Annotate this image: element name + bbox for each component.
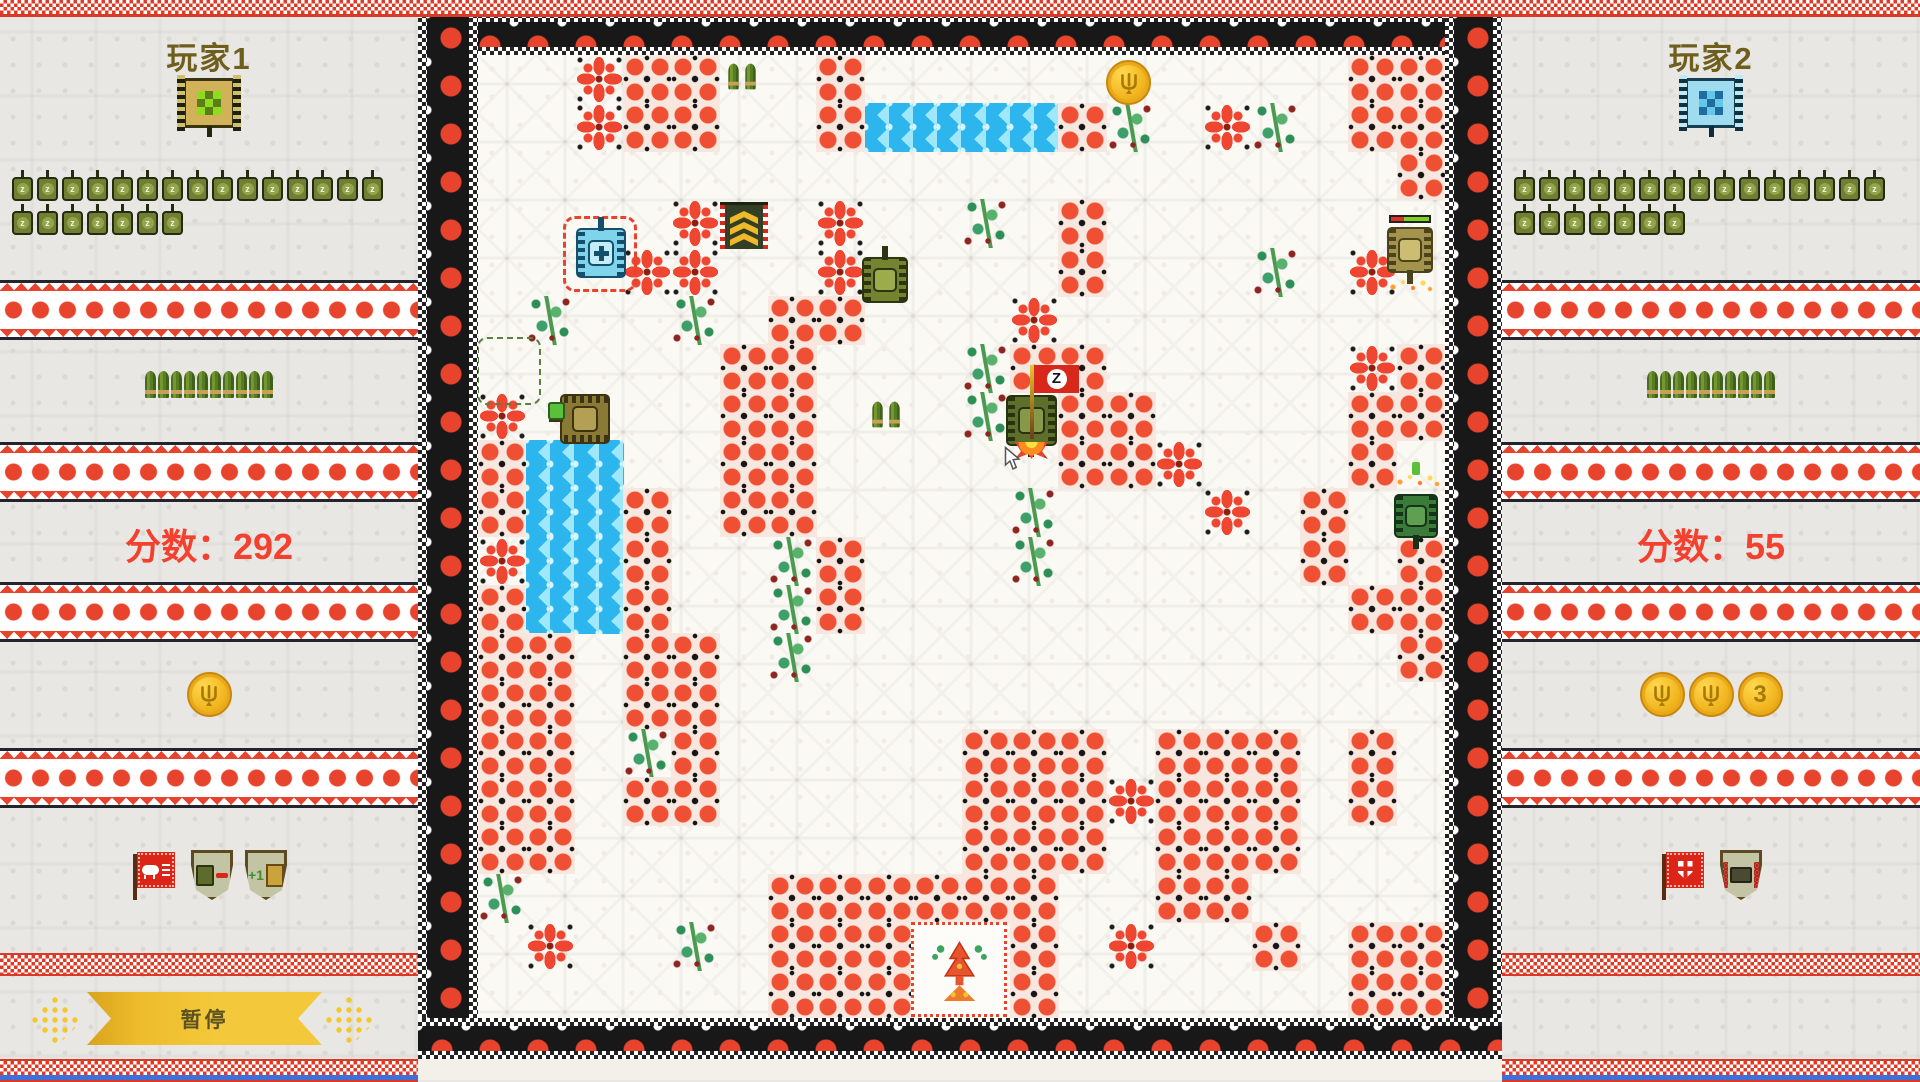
tile-water [575,488,624,537]
tile-water [526,440,575,489]
tile-flower-brick [1010,777,1059,826]
tile-star-brick [526,922,575,971]
tank-icon [196,865,214,886]
ammo-bullet-icon [1764,371,1775,398]
game-field: Z [418,0,1502,1080]
tile-flower-brick [1252,825,1301,874]
tile-star-brick [816,248,865,297]
ammo-bullet-icon [249,371,260,398]
ammo-bullet-icon [1660,371,1671,398]
coin-icon [187,672,232,717]
tile-flower-brick [478,729,527,778]
tile-flower-brick [1397,585,1445,634]
tile-bush [962,392,1011,441]
life-tank-icon: z [1539,177,1560,201]
coin-icon [1689,672,1734,717]
snowflake-icon [599,251,604,256]
life-tank-icon: z [112,211,133,235]
tile-water [575,585,624,634]
life-tank-icon: z [1664,211,1685,235]
tile-flower-brick [720,440,769,489]
player2-score-value: 55 [1745,526,1785,567]
ammo-bullet-icon [1699,371,1710,398]
ornament-stripe [1502,582,1920,642]
tile-flower-brick [671,681,720,730]
player2-tank-body [576,228,626,278]
ornament-stripe [0,442,418,502]
tile-star-brick [1203,488,1252,537]
snowflake-motif [324,995,376,1047]
ornament-stripe [1502,442,1920,502]
life-tank-icon: z [1539,211,1560,235]
life-tank-icon: z [1614,177,1635,201]
ammo-bullet-icon [1725,371,1736,398]
tile-flower-brick [623,585,672,634]
tile-water [526,585,575,634]
tile-flower-brick [1348,585,1397,634]
player2-tank [576,228,626,278]
field-border-bottom [418,1018,1502,1059]
pause-button[interactable]: 暂停 [87,992,322,1045]
lives-row: zzzzzzzzzzzzzzz [10,170,410,201]
tile-bush [768,633,817,682]
tile-flower-brick [1058,103,1107,152]
field-border-right [1445,14,1502,1059]
life-tank-icon: z [12,177,33,201]
life-tank-icon: z [1514,177,1535,201]
tile-flower-brick [816,585,865,634]
tile-water [865,103,914,152]
shield-cross-emblem-icon [1678,861,1693,879]
life-tank-icon: z [112,177,133,201]
tile-bush [1010,537,1059,586]
life-tank-icon: z [1564,177,1585,201]
ammo-bullet-icon [1673,371,1684,398]
life-tank-icon: z [1589,177,1610,201]
coin-pickup [1106,60,1151,105]
tile-flower-brick [865,874,914,923]
tile-star-brick [671,248,720,297]
tile-flower-brick [1058,825,1107,874]
life-tank-icon: z [87,211,108,235]
mouse-cursor [1004,446,1022,471]
life-tank-icon: z [1564,211,1585,235]
rider-figure [548,402,565,420]
thin-ornament-band [0,953,418,976]
ammo-bullet-icon [197,371,208,398]
ammo-pickup [727,63,757,90]
tile-flower-brick [526,633,575,682]
ammo-pickup [871,401,901,428]
tile-flower-brick [623,488,672,537]
tile-bush [962,199,1011,248]
enemy-tank-left [560,394,610,444]
tile-flower-brick [1010,825,1059,874]
ornament-stripe [0,748,418,808]
green-tank [1394,494,1438,538]
health-bar [1389,215,1431,223]
tile-flower-brick [623,777,672,826]
tile-flower-brick [1300,537,1349,586]
life-tank-icon: z [1639,177,1660,201]
tile-flower-brick [1010,922,1059,971]
tile-flower-brick [478,777,527,826]
tile-flower-brick [1348,103,1397,152]
ammo-bullet-icon [210,371,221,398]
tile-star-brick [1010,296,1059,345]
tile-water [526,537,575,586]
bonus-figure-icon [1412,462,1420,475]
tile-bush [671,296,720,345]
ornament-stripe [0,582,418,642]
tile-flower-brick [526,777,575,826]
tile-flower-brick [816,970,865,1018]
lives-row: zzzzzzzzzzzzzzz [1512,170,1912,201]
tile-bush [962,344,1011,393]
player2-tank-emblem [1685,78,1737,128]
ammo-bullet-icon [889,402,899,428]
tile-flower-brick [816,55,865,104]
ammo-bullet-icon [745,64,755,90]
z-flag: Z [1034,365,1079,393]
powerup-flag-icon [131,850,179,902]
tile-star-brick [1107,922,1156,971]
tile-flower-brick [1058,199,1107,248]
tile-flower-brick [1155,825,1204,874]
player1-score: 分数：292 [0,518,418,570]
life-tank-icon: z [362,177,383,201]
life-tank-icon: z [12,211,33,235]
sergeant-stripes-pickup [720,202,768,249]
tile-bush [1252,248,1301,297]
life-tank-icon: z [37,211,58,235]
tile-flower-brick [1348,440,1397,489]
tile-flower-brick [478,440,527,489]
powerup-shield-icon: +1 [245,850,287,900]
tile-flower-brick [816,537,865,586]
tile-water [1010,103,1059,152]
tile-water [913,103,962,152]
player2-powerups [1502,850,1920,902]
trident-icon [196,682,222,708]
life-tank-icon: z [1864,177,1885,201]
tile-flower-brick [623,633,672,682]
life-tank-icon: z [1789,177,1810,201]
cursor-icon [1004,446,1022,471]
tile-flower-brick [623,537,672,586]
bonus-tank [1387,227,1433,273]
tile-water [526,488,575,537]
player1-tank-emblem [183,78,235,128]
tile-star-brick [1107,777,1156,826]
powerup-shield-icon [191,850,233,900]
tile-flower-brick [671,729,720,778]
ammo-bullet-icon [1712,371,1723,398]
tile-flower-brick [1155,777,1204,826]
ammo-bullet-icon [236,371,247,398]
ammo-bullet-icon [184,371,195,398]
life-tank-icon: z [1689,177,1710,201]
tile-bush [623,729,672,778]
bottom-blue-bar [1502,1075,1920,1080]
life-tank-icon: z [1714,177,1735,201]
tile-flower-brick [1203,825,1252,874]
trident-icon [1649,682,1675,708]
tile-flower-brick [1348,777,1397,826]
player2-lives: zzzzzzzzzzzzzzzzzzzzzz [1512,170,1912,238]
lives-row: zzzzzzz [1512,204,1912,235]
tile-flower-brick [962,729,1011,778]
ornament-stripe [1502,748,1920,808]
tile-flower-brick [478,681,527,730]
tile-flower-brick [1348,970,1397,1018]
tile-star-brick [478,537,527,586]
z-flag-tank: Z [1006,395,1057,446]
tile-flower-brick [1010,729,1059,778]
tile-flower-brick [623,681,672,730]
tile-flower-brick [623,55,672,104]
tile-flower-brick [962,777,1011,826]
tile-flower-brick [478,488,527,537]
green-tank-body [1394,494,1438,538]
player2-panel: 玩家2 zzzzzzzzzzzzzzzzzzzzzz 分数：55 3 [1502,0,1920,1080]
tile-flower-brick [816,922,865,971]
life-tank-icon: z [87,177,108,201]
bottom-blue-bar [0,1075,418,1080]
enemy-tank-left-body [560,394,610,444]
tile-flower-brick [1348,55,1397,104]
tile-flower-brick [1203,874,1252,923]
field-border-left [418,14,478,1059]
tile-flower-brick [865,922,914,971]
battlefield: Z [478,55,1445,1018]
tile-flower-brick [768,874,817,923]
ammo-bullet-icon [872,402,882,428]
tile-flower-brick [1155,874,1204,923]
tile-flower-brick [720,488,769,537]
life-tank-icon: z [1514,211,1535,235]
tile-star-brick [816,199,865,248]
tile-flower-brick [478,633,527,682]
tile-flower-brick [671,633,720,682]
tile-flower-brick [768,440,817,489]
tile-flower-brick [1058,248,1107,297]
tile-flower-brick [1348,729,1397,778]
enemy-tank-body [862,257,908,303]
tile-flower-brick [768,392,817,441]
player1-ammo-row [0,371,418,398]
life-tank-icon: z [1739,177,1760,201]
tile-flower-brick [816,874,865,923]
tile-bush [768,537,817,586]
tile-flower-brick [1397,344,1445,393]
tile-flower-brick [1058,440,1107,489]
tile-bush [1010,488,1059,537]
life-tank-icon: z [62,211,83,235]
tile-flower-brick [1397,970,1445,1018]
player2-ammo-row [1502,371,1920,398]
life-tank-icon: z [137,177,158,201]
tile-flower-brick [526,825,575,874]
life-tank-icon: z [287,177,308,201]
ammo-bullet-icon [158,371,169,398]
life-tank-icon: z [262,177,283,201]
tile-flower-brick [768,296,817,345]
tile-flower-brick [1252,922,1301,971]
enemy-tank [862,257,908,303]
life-tank-icon: z [162,177,183,201]
player2-title: 玩家2 [1502,33,1920,78]
ammo-bullet-icon [223,371,234,398]
tile-bush [1107,103,1156,152]
tile-flower-brick [526,681,575,730]
tile-flower-brick [962,825,1011,874]
tile-flower-brick [1397,922,1445,971]
chevron-icon [730,233,758,246]
ammo-bullet-icon [1751,371,1762,398]
life-tank-icon: z [37,177,58,201]
tile-flower-brick [1348,922,1397,971]
life-tank-icon: z [337,177,358,201]
powerup-flag-icon [1660,850,1708,902]
ammo-bullet-icon [1738,371,1749,398]
tile-flower-brick [1397,151,1445,200]
ammo-bullet-icon [1647,371,1658,398]
tile-flower-brick [768,488,817,537]
tile-water [575,440,624,489]
life-tank-icon: z [312,177,333,201]
tile-flower-brick [720,392,769,441]
bullet-icon [216,873,228,878]
tile-flower-brick [671,103,720,152]
tile-flower-brick [1397,633,1445,682]
tile-flower-brick [816,296,865,345]
life-tank-icon: z [137,211,158,235]
tree-of-life-icon [928,933,991,1006]
tile-flower-brick [768,922,817,971]
life-tank-icon: z [162,211,183,235]
tile-flower-brick [816,103,865,152]
tile-flower-brick [962,874,1011,923]
tile-flower-brick [1397,103,1445,152]
ornament-stripe [0,280,418,340]
life-tank-icon: z [1589,211,1610,235]
tile-flower-brick [1397,537,1445,586]
tile-star-brick [575,55,624,104]
tile-flower-brick [768,970,817,1018]
tile-bush [1252,103,1301,152]
ornament-stripe [1502,280,1920,340]
vine-outline [478,337,541,405]
tile-bush [478,874,527,923]
field-border-top [418,14,1502,55]
player1-lives: zzzzzzzzzzzzzzzzzzzzzz [10,170,410,238]
ammo-bullet-icon [171,371,182,398]
snowflake-icon [1707,99,1715,107]
tile-star-brick [1155,440,1204,489]
life-tank-icon: z [1664,177,1685,201]
tile-flower-brick [1058,777,1107,826]
tile-flower-brick [1252,777,1301,826]
tile-flower-brick [671,55,720,104]
tile-flower-brick [768,344,817,393]
tile-flower-brick [1203,777,1252,826]
tile-flower-brick [1107,392,1156,441]
player1-powerups: +1 [0,850,418,902]
tile-flower-brick [1203,729,1252,778]
tank-emblem-icon [266,864,284,887]
tile-flower-brick [1397,392,1445,441]
tile-flower-brick [623,103,672,152]
life-tank-icon: z [1764,177,1785,201]
bonus-tank-body [1387,227,1433,273]
coin-icon [1640,672,1685,717]
powerup-shield-icon [1720,850,1762,900]
sparkles-icon [1394,474,1440,488]
tile-bush [671,922,720,971]
tile-star-brick [1203,103,1252,152]
top-ornament-band [0,0,1920,17]
tile-flower-brick [1397,55,1445,104]
flower-icon [205,99,213,107]
life-tank-icon: z [1639,211,1660,235]
tile-flower-brick [1155,729,1204,778]
tile-flower-brick [478,825,527,874]
ammo-bullet-icon [145,371,156,398]
tile-bush [768,585,817,634]
life-tank-icon: z [1614,211,1635,235]
tile-flower-brick [526,729,575,778]
tile-flower-brick [1010,970,1059,1018]
player2-score: 分数：55 [1502,518,1920,570]
tile-flower-brick [1107,440,1156,489]
thin-ornament-band [1502,953,1920,976]
tile-flower-brick [720,344,769,393]
snowflake-motif [30,995,82,1047]
trident-icon [1116,70,1142,96]
life-tank-icon: z [1814,177,1835,201]
life-tank-icon: z [212,177,233,201]
boar-emblem-icon [142,865,159,875]
tile-flower-brick [1300,488,1349,537]
sparkles-icon [1387,279,1433,293]
player1-coins [0,672,418,717]
tile-flower-brick [671,777,720,826]
tile-flower-brick [1058,392,1107,441]
base-tree-of-life [911,922,1007,1017]
tile-flower-brick [865,970,914,1018]
tile-water [962,103,1011,152]
ammo-bullet-icon [728,64,738,90]
tile-flower-brick [478,585,527,634]
tile-flower-brick [1348,392,1397,441]
player1-score-value: 292 [233,526,293,567]
tile-water [575,537,624,586]
player1-panel: 玩家1 zzzzzzzzzzzzzzzzzzzzzz 分数：292 +1 暂停 [0,0,418,1080]
player1-title: 玩家1 [0,33,418,78]
life-tank-icon: z [237,177,258,201]
coin-icon: 3 [1738,672,1783,717]
lives-row: zzzzzzz [10,204,410,235]
tile-star-brick [575,103,624,152]
tile-star-brick [1348,344,1397,393]
player2-coins: 3 [1502,672,1920,717]
tile-flower-brick [1252,729,1301,778]
tile-flower-brick [913,874,962,923]
trident-icon [1698,682,1724,708]
tank-icon [1730,867,1752,883]
life-tank-icon: z [187,177,208,201]
